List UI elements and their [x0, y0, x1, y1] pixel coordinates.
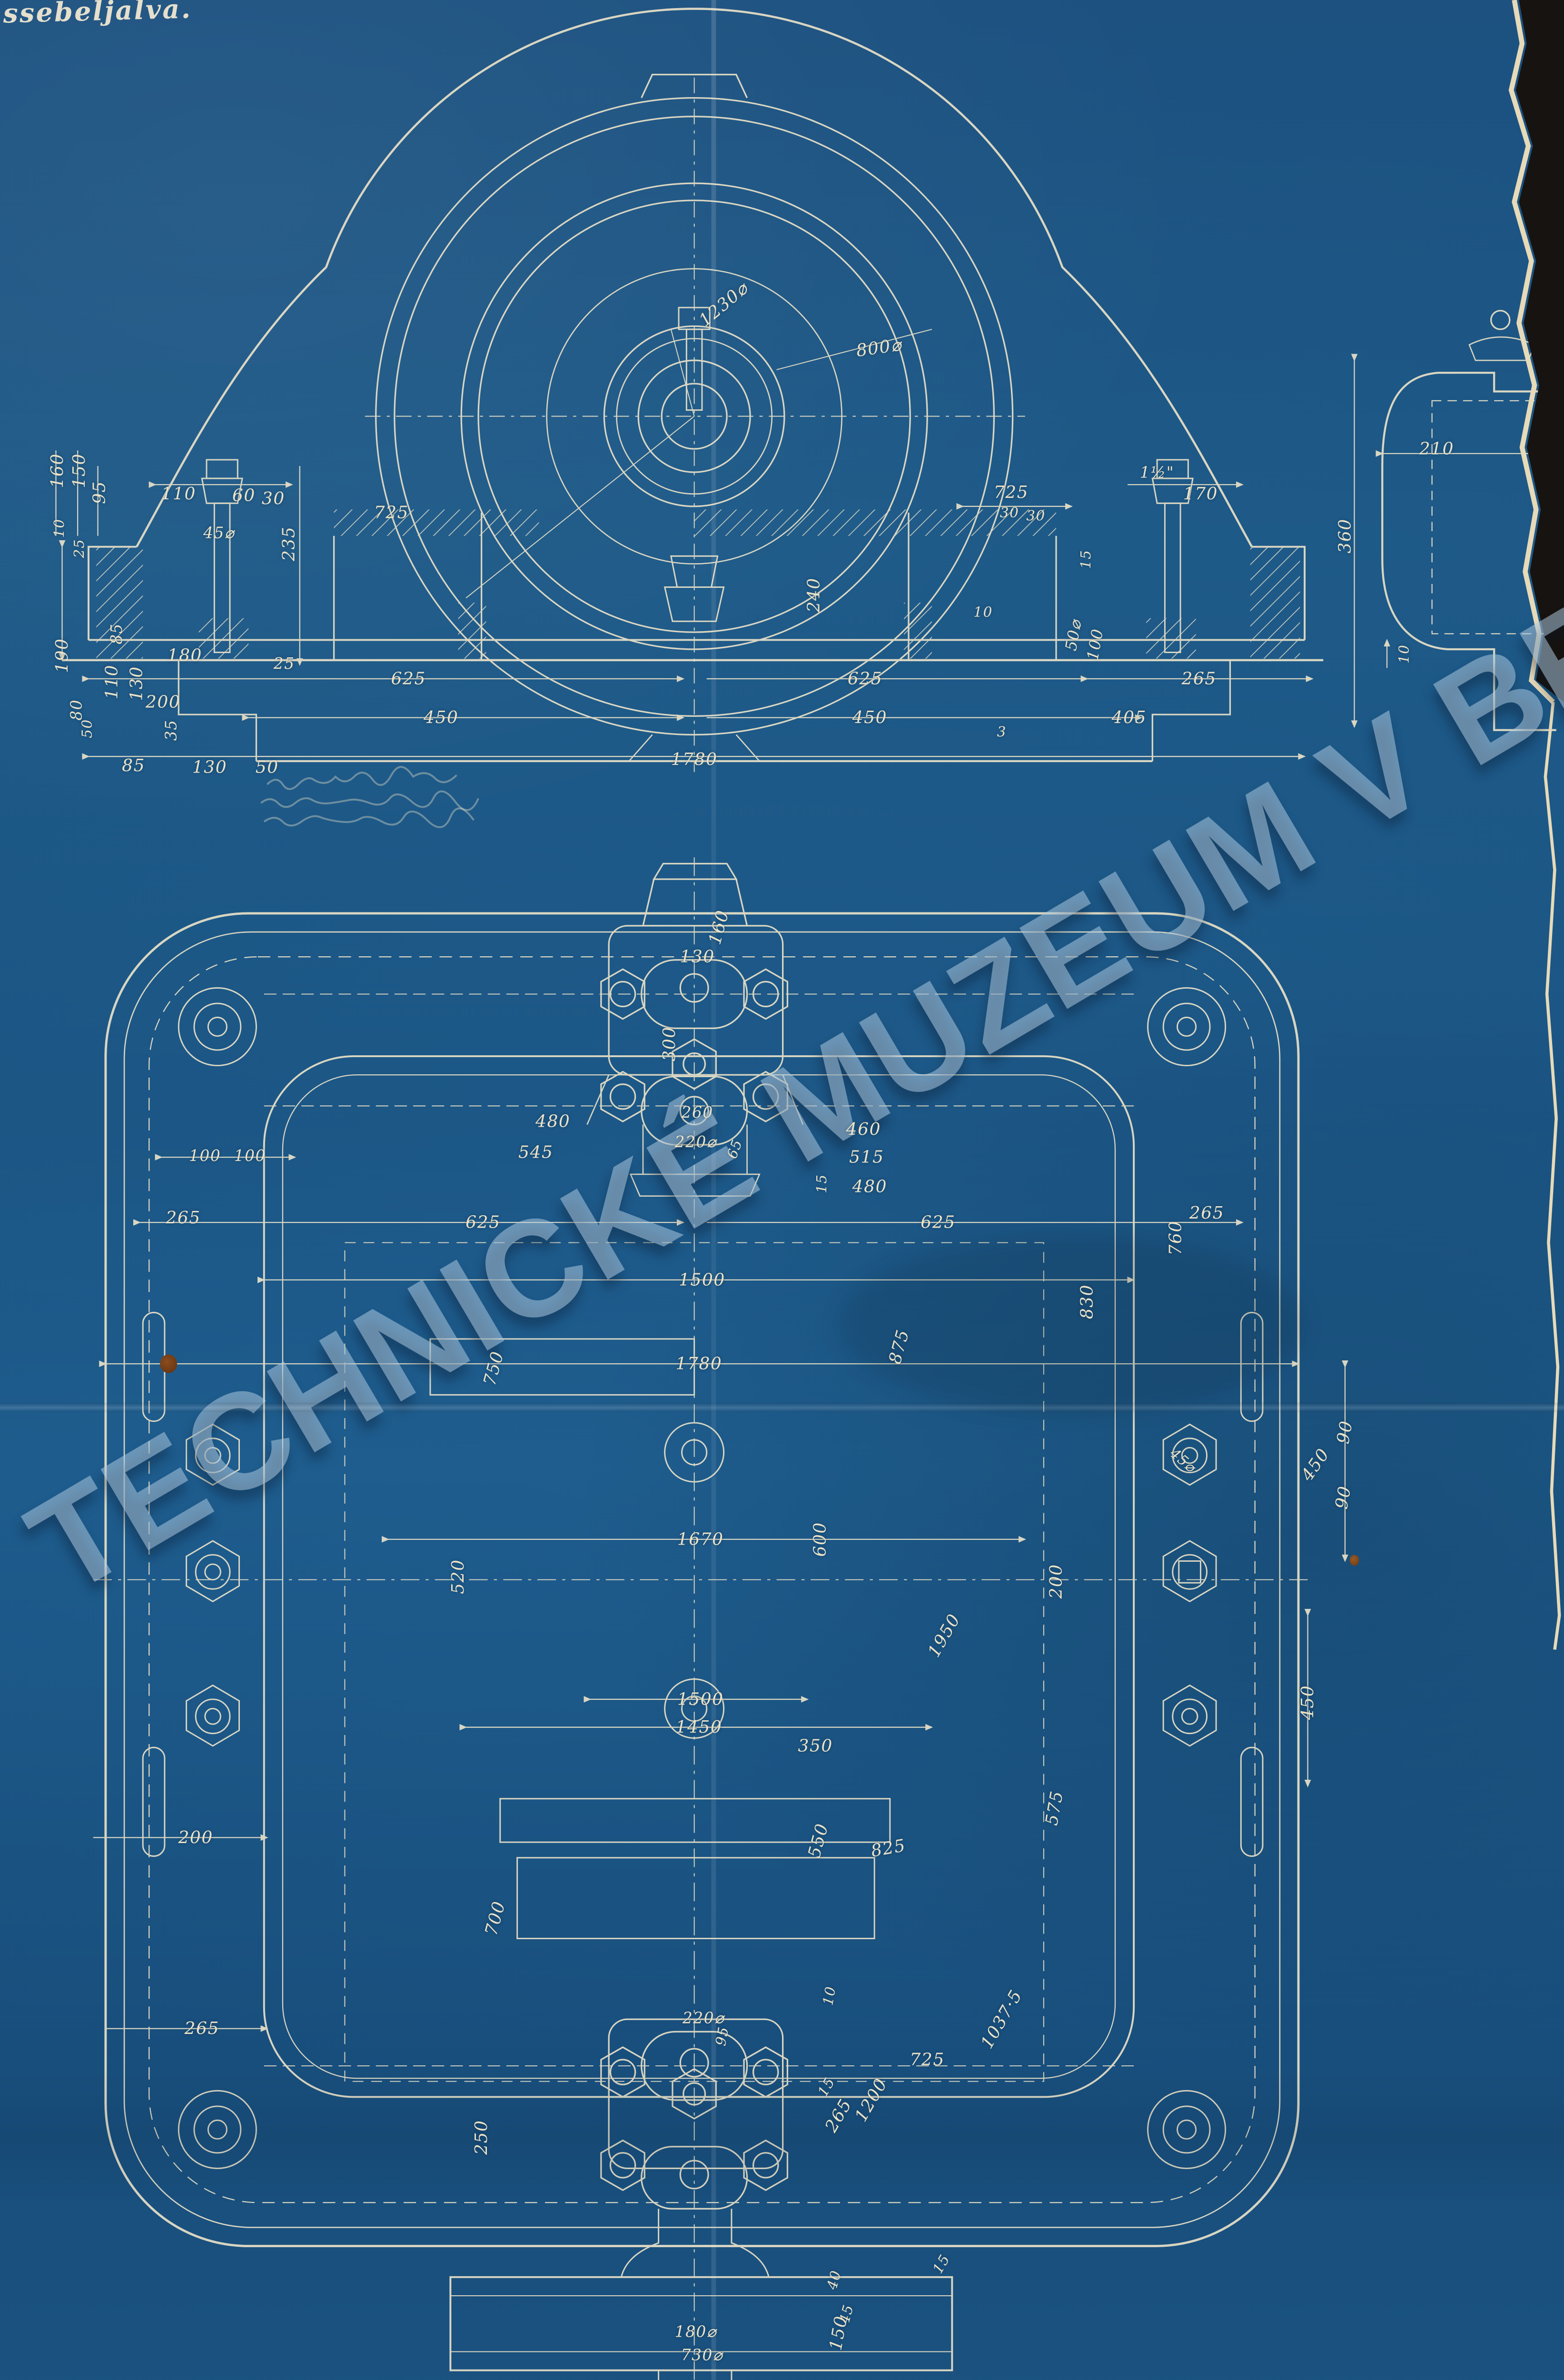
dimension-label: 515	[849, 1147, 884, 1167]
dimension-label: 545	[518, 1142, 553, 1162]
plan-view-dimension-labels: 160130300260220⌀654805454605151548010010…	[0, 0, 1564, 2380]
dimension-label: 760	[1166, 1220, 1186, 1255]
dimension-label: 265	[166, 1208, 200, 1228]
dimension-label: 260	[682, 1105, 713, 1122]
dimension-label: 600	[810, 1522, 830, 1557]
dimension-label: 45⌀	[1166, 1447, 1198, 1477]
dimension-label: 130	[680, 947, 714, 967]
blueprint-sheet: TECHNICKÉ MUZEUM V BRNĚ ssebeljalva. 123…	[0, 0, 1564, 2380]
dimension-label: 100	[234, 1149, 266, 1166]
dimension-label: 750	[480, 1349, 508, 1388]
dimension-label: 300	[659, 1026, 679, 1061]
dimension-label: 10	[822, 1985, 840, 2007]
dimension-label: 90	[1332, 1484, 1356, 1511]
dimension-label: 825	[870, 1835, 908, 1862]
dimension-label: 95	[714, 2025, 733, 2047]
dimension-label: 220⌀	[675, 1135, 717, 1152]
dimension-label: 730⌀	[681, 2348, 723, 2365]
dimension-label: 265	[1189, 1203, 1224, 1223]
dimension-label: 700	[481, 1899, 510, 1938]
dimension-label: 830	[1077, 1284, 1097, 1319]
dimension-label: 90	[1333, 1419, 1357, 1446]
dimension-label: 1950	[924, 1610, 965, 1661]
dimension-label: 160	[705, 908, 733, 947]
dimension-label: 1037·5	[977, 1986, 1027, 2052]
dimension-label: 460	[846, 1119, 881, 1139]
dimension-label: 480	[852, 1177, 887, 1197]
dimension-label: 200	[1046, 1564, 1066, 1598]
dimension-label: 1500	[679, 1270, 725, 1290]
dimension-label: 200	[178, 1827, 213, 1847]
dimension-label: 1670	[677, 1529, 724, 1549]
dimension-label: 480	[535, 1111, 570, 1131]
dimension-label: 725	[910, 2050, 944, 2070]
dimension-label: 100	[189, 1149, 221, 1166]
dimension-label: 1450	[675, 1717, 722, 1737]
dimension-label: 350	[798, 1736, 832, 1756]
dimension-label: 15	[816, 2075, 840, 2100]
blueprint-scan: TECHNICKÉ MUZEUM V BRNĚ ssebeljalva. 123…	[0, 0, 1564, 2380]
dimension-label: 65	[725, 1138, 747, 1161]
dimension-label: 450	[1297, 1685, 1317, 1720]
dimension-label: 875	[885, 1327, 913, 1366]
dimension-label: 15	[815, 1174, 831, 1193]
dimension-label: 265	[821, 2095, 856, 2136]
dimension-label: 625	[921, 1212, 955, 1232]
dimension-label: 1780	[675, 1354, 722, 1374]
dimension-label: 1200	[851, 2075, 892, 2125]
dimension-label: 550	[804, 1821, 833, 1860]
dimension-label: 520	[448, 1559, 468, 1594]
dimension-label: 625	[465, 1212, 500, 1232]
dimension-label: 15	[931, 2252, 954, 2277]
dimension-label: 1500	[677, 1689, 724, 1709]
dimension-label: 575	[1041, 1789, 1068, 1827]
dimension-label: 180⌀	[675, 2324, 717, 2341]
dimension-label: 265	[185, 2019, 219, 2039]
dimension-label: 40	[826, 2269, 846, 2292]
dimension-label: 250	[471, 2120, 491, 2154]
dimension-label: 450	[1297, 1445, 1334, 1485]
dimension-label: 150	[826, 2314, 852, 2352]
